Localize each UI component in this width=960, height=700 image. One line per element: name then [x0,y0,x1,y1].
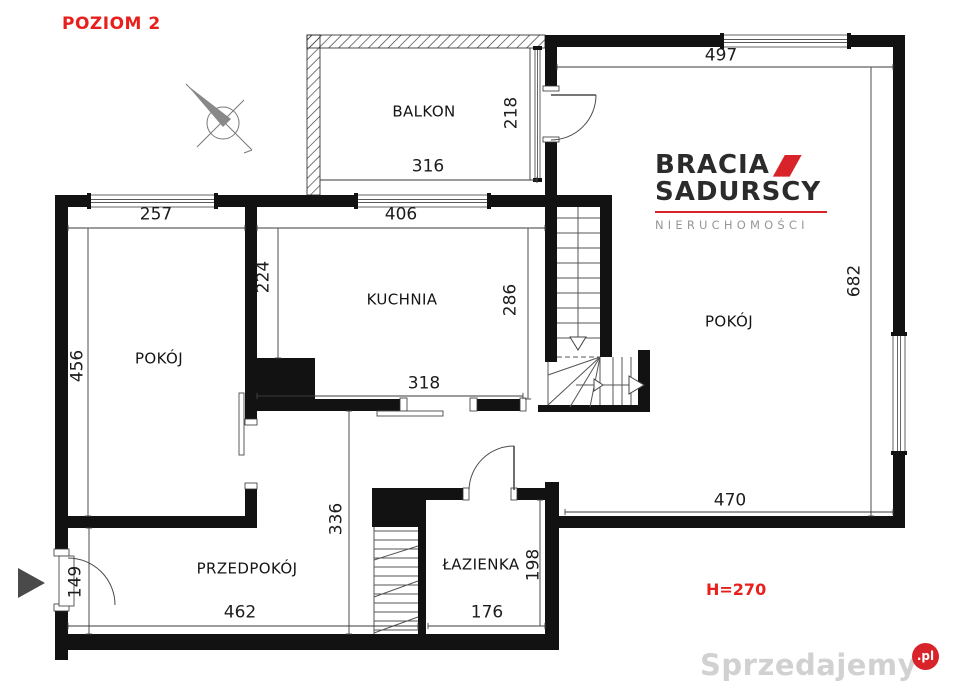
logo-line1: BRACIA [655,152,770,179]
dimension-lines [68,48,893,634]
lower-stairs [374,527,418,634]
door-jambs [54,86,559,611]
room-label-lazienka: ŁAZIENKA [442,558,519,573]
dim-198: 198 [526,549,543,581]
room-label-przedpokoj: PRZEDPOKÓJ [197,562,298,577]
entrance-arrow-icon [18,568,45,598]
dim-316: 316 [412,159,444,176]
compass-rose-icon [186,84,252,153]
dim-218: 218 [504,97,521,129]
dim-336: 336 [329,503,346,535]
page-title: POZIOM 2 [62,14,161,34]
room-label-pokoj-right: POKÓJ [705,315,753,330]
logo-tagline: NIERUCHOMOŚCI [655,218,850,232]
dim-257: 257 [140,207,172,224]
dim-286: 286 [503,284,520,316]
watermark: Sprzedajemy .pl [700,651,912,680]
room-label-balkon: BALKON [392,105,455,120]
staircase [548,207,644,407]
dim-318: 318 [408,376,440,393]
dim-406: 406 [385,207,417,224]
logo-line2: SADURSCY [655,179,850,206]
watermark-pl-badge: .pl [912,643,939,670]
dim-456: 456 [70,350,87,382]
dim-224: 224 [256,261,273,293]
room-label-pokoj-left: POKÓJ [135,352,183,367]
logo-divider [655,211,827,213]
ceiling-height-label: H=270 [706,580,766,599]
dim-462: 462 [224,605,256,622]
floorplan-page: POZIOM 2 H=270 BALKON KUCHNIA POKÓJ POKÓ… [0,0,960,700]
dim-470: 470 [714,493,746,510]
room-label-kuchnia: KUCHNIA [367,293,438,308]
dim-682: 682 [847,265,864,297]
watermark-text: Sprzedajemy [700,651,917,680]
dim-149: 149 [68,566,85,598]
dim-497: 497 [705,48,737,65]
dim-176: 176 [471,605,503,622]
room-sliding-door [239,393,244,455]
balcony-door [551,95,596,140]
agency-logo: BRACIA SADURSCY NIERUCHOMOŚCI [655,152,850,232]
bathroom-door [469,446,514,490]
kitchen-sliding-door [377,411,443,416]
windows [87,33,907,455]
logo-flag-icon [773,155,802,177]
